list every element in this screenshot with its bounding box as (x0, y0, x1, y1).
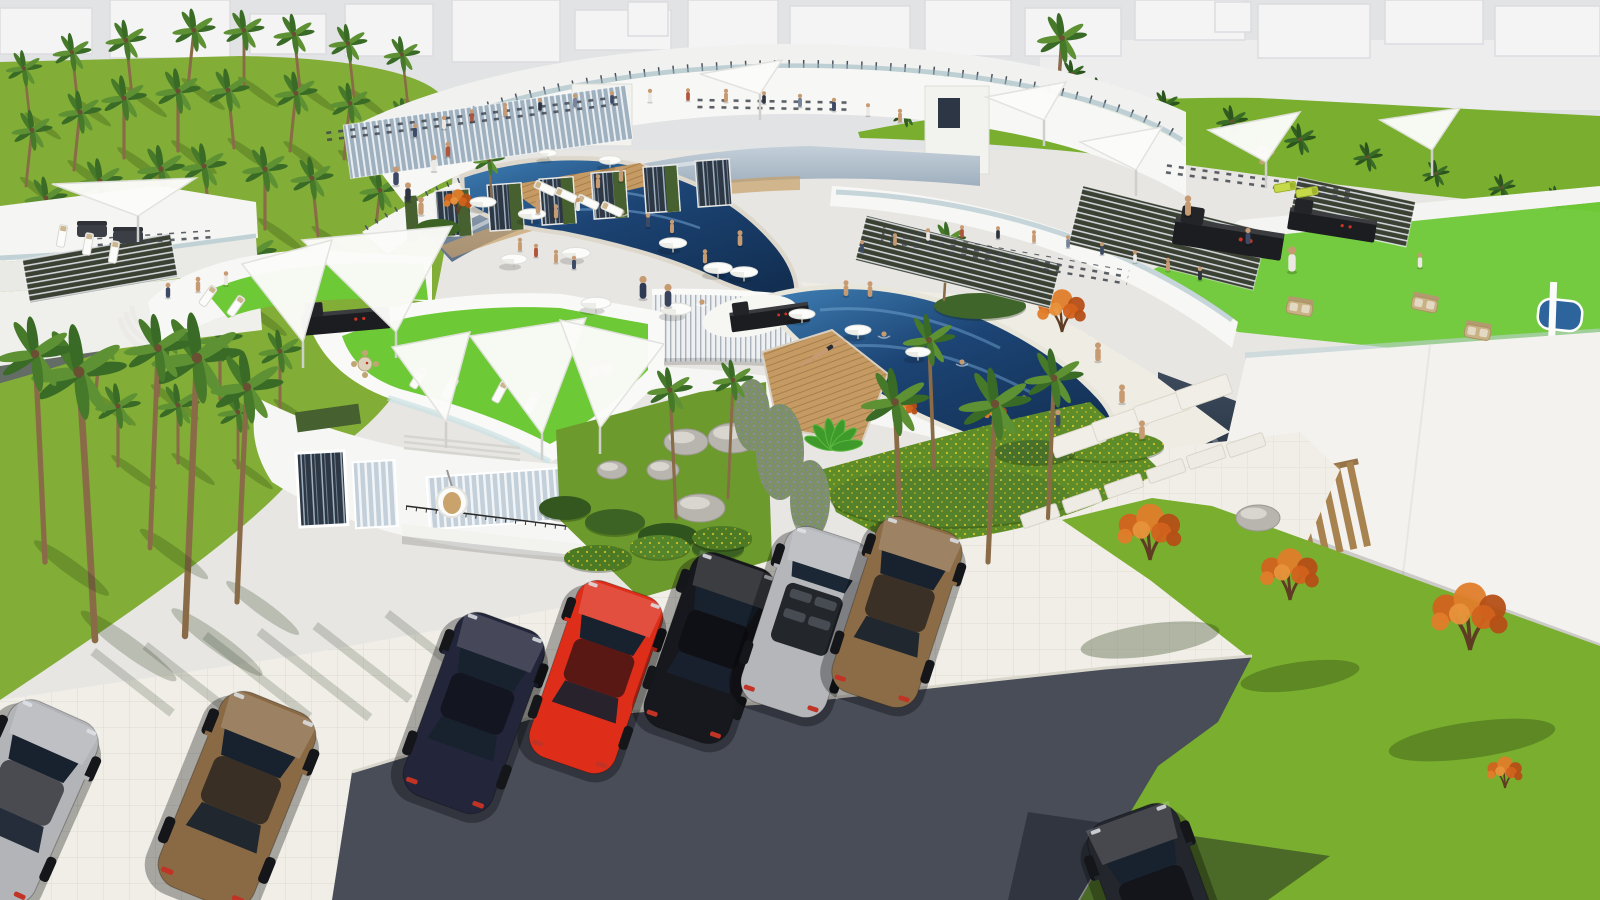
person-head (868, 281, 873, 286)
palm-crown-center (1051, 375, 1058, 382)
palm-crown-center (44, 196, 49, 201)
person-body (703, 254, 707, 264)
person-head (538, 98, 542, 102)
palm-crown-center (78, 110, 83, 115)
person-body (686, 92, 690, 101)
autumn-foliage (1305, 574, 1319, 588)
person-body (554, 209, 558, 219)
palm-crown-center (278, 349, 283, 354)
person-body (518, 242, 522, 251)
person-body (1095, 348, 1101, 361)
person-head (1166, 258, 1170, 262)
dining-chair (351, 361, 357, 367)
person-head (844, 280, 849, 285)
rock (675, 494, 725, 522)
palm-crown-center (262, 166, 267, 171)
person-head (1100, 242, 1104, 246)
palm-crown-center (667, 387, 672, 392)
person-body (1066, 239, 1070, 248)
person-body (893, 237, 897, 246)
person-body (610, 95, 614, 104)
person-body (1133, 254, 1137, 263)
person-head (703, 249, 708, 254)
bush (692, 526, 752, 552)
person-head (1139, 420, 1145, 426)
palm-crown-center (400, 52, 404, 56)
person-body (224, 276, 228, 286)
umbrella-shadow (499, 264, 521, 271)
person-body (596, 179, 600, 189)
dining-chair (362, 372, 368, 378)
palm-crown-center (70, 50, 74, 54)
autumn-foliage (1037, 308, 1048, 319)
person-body (1056, 415, 1061, 427)
autumn-foliage (1487, 771, 1495, 779)
palm-crown-center (346, 41, 350, 45)
person-head (1245, 228, 1250, 233)
umbrella-shadow (468, 207, 490, 214)
palm-crown-center (378, 188, 383, 193)
palm-crown-center (22, 66, 26, 70)
person-head (470, 109, 474, 113)
person-head (518, 238, 522, 242)
palm-crown-center (31, 350, 40, 359)
person-head (664, 284, 671, 291)
person-head (1185, 195, 1192, 202)
person-head (1119, 384, 1125, 390)
person-body (1032, 234, 1036, 243)
person-head (619, 167, 624, 172)
person-body (1418, 257, 1422, 267)
city-block (1495, 6, 1600, 56)
person-body (405, 188, 411, 201)
person-head (610, 91, 614, 95)
person-body (1288, 254, 1295, 272)
bush (564, 545, 632, 573)
palm-crown-center (192, 353, 202, 363)
person-head (639, 276, 646, 283)
palm-crown-center (731, 378, 736, 383)
person-body (572, 260, 576, 269)
person-head (405, 182, 411, 188)
person-head (1418, 253, 1423, 258)
person-head (576, 198, 580, 202)
autumn-foliage (1495, 766, 1505, 776)
person-body (646, 218, 650, 228)
city-block (688, 0, 778, 50)
person-body (866, 107, 870, 116)
person-body (898, 113, 902, 122)
person-head (686, 88, 690, 92)
autumn-foliage (1274, 564, 1290, 580)
person-body (534, 248, 538, 257)
autumn-foliage (1074, 310, 1085, 321)
person-body (762, 95, 766, 104)
palm-crown-center (124, 38, 129, 43)
person-head (860, 240, 864, 244)
person-head (431, 155, 436, 160)
palm-crown-center (236, 410, 241, 415)
palm-crown-center (926, 337, 932, 343)
grill-hood (1294, 198, 1314, 215)
autumn-foliage (1431, 613, 1449, 631)
person-head (832, 98, 836, 102)
palm-crown-center (891, 398, 899, 406)
umbrella-shadow (904, 357, 925, 364)
person-body (442, 120, 446, 129)
person-head (1032, 230, 1036, 234)
person-body (554, 254, 558, 263)
autumn-foliage (1166, 531, 1181, 546)
person-head (648, 89, 652, 93)
person-body (576, 202, 580, 211)
person-body (536, 203, 540, 213)
palm-crown-center (991, 400, 999, 408)
palm-crown-center (154, 344, 162, 352)
person-body (1100, 246, 1104, 255)
person-body (538, 102, 542, 111)
autumn-foliage (1133, 521, 1151, 539)
tower-window (938, 98, 960, 128)
palm-crown-center (176, 403, 181, 408)
palm-crown-center (294, 91, 299, 96)
person-head (554, 250, 558, 254)
autumn-foliage (1118, 529, 1133, 544)
person-body (926, 232, 930, 241)
person-head (1055, 410, 1060, 415)
palm-crown-center (74, 367, 85, 378)
palm-crown-center (115, 403, 120, 408)
city-block (1385, 0, 1483, 44)
person-body (619, 171, 623, 181)
person-body (503, 107, 507, 116)
person-head (413, 124, 417, 128)
city-block (628, 2, 668, 36)
egg-chair-cushion (443, 492, 461, 514)
palm-crown-center (201, 163, 206, 168)
person-body (960, 229, 964, 238)
person-body (573, 98, 577, 107)
dining-chair (362, 350, 368, 356)
person-body (196, 281, 200, 291)
person-head (893, 233, 897, 237)
dining-chair (373, 361, 379, 367)
autumn-foliage (444, 200, 451, 207)
person-head (596, 174, 601, 179)
person-body (1119, 390, 1125, 403)
palm-crown-center (192, 28, 197, 33)
person-head (996, 226, 1000, 230)
umbrella-shadow (597, 165, 616, 171)
palm-crown-center (1434, 172, 1437, 175)
umbrella-shadow (843, 335, 865, 342)
palm-crown-center (30, 128, 35, 133)
person-head (1133, 250, 1137, 254)
person-body (648, 93, 652, 102)
person-head (572, 256, 576, 260)
umbrella-shadow (536, 159, 551, 164)
person-body (868, 286, 873, 297)
rooftop-plunge-pool (1537, 298, 1584, 332)
person-head (446, 142, 451, 147)
person-head (646, 213, 651, 218)
person-head (898, 109, 902, 113)
autumn-foliage (1260, 571, 1274, 585)
person-head (418, 197, 424, 203)
palm-crown-center (292, 32, 297, 37)
city-block (452, 0, 560, 62)
person-head (960, 225, 964, 229)
render-canvas (0, 0, 1600, 900)
palm-crown-center (1298, 137, 1302, 141)
person-head (166, 283, 171, 288)
palm-crown-center (121, 95, 126, 100)
person-body (640, 283, 647, 299)
palm-crown-center (310, 176, 315, 181)
person-body (1198, 271, 1202, 280)
person-head (554, 204, 559, 209)
flowering-bush (564, 545, 632, 571)
palm-crown-center (1366, 155, 1369, 158)
palm-crown-center (242, 28, 247, 33)
palm-crown-center (243, 383, 251, 391)
person-body (798, 98, 802, 107)
person-body (724, 93, 728, 102)
autumn-foliage (450, 197, 458, 205)
flowering-bush (692, 526, 752, 550)
autumn-foliage (1449, 604, 1470, 625)
person-head (1198, 267, 1202, 271)
palm-crown-center (1500, 186, 1503, 189)
person-body (1185, 202, 1191, 216)
umbrella-shadow (787, 319, 809, 326)
person-body (1139, 426, 1145, 439)
bush (539, 496, 591, 522)
bush (585, 509, 645, 537)
guest-room (664, 159, 732, 212)
person-head (762, 91, 766, 95)
palm-crown-center (158, 166, 163, 171)
person-body (832, 102, 836, 111)
palm-crown-center (175, 88, 180, 93)
person-head (798, 94, 802, 98)
person-head (926, 228, 930, 232)
city-block (1258, 4, 1370, 58)
person-body (860, 244, 864, 253)
bush (630, 535, 690, 561)
palm-crown-center (1059, 35, 1065, 41)
person-head (738, 230, 743, 235)
person-head (573, 94, 577, 98)
autumn-foliage (1490, 616, 1508, 634)
person-head (393, 166, 399, 172)
person-head (1288, 246, 1296, 254)
rock (1236, 505, 1280, 531)
palm-crown-center (348, 101, 353, 106)
resort-render (0, 0, 1600, 900)
person-head (1095, 342, 1101, 348)
person-body (166, 287, 170, 297)
autumn-foliage (1514, 772, 1522, 780)
person-head (1066, 235, 1070, 239)
person-body (418, 202, 423, 215)
city-block (345, 4, 433, 56)
person-head (670, 220, 674, 224)
person-body (413, 128, 417, 137)
person-body (738, 235, 743, 246)
person-body (1246, 233, 1251, 245)
person-head (536, 199, 541, 204)
person-head (224, 271, 229, 276)
person-body (670, 224, 674, 233)
person-head (196, 277, 201, 282)
city-block (790, 6, 910, 50)
person-body (446, 146, 450, 156)
person-head (724, 89, 728, 93)
palm-crown-center (1230, 119, 1234, 123)
person-head (534, 244, 538, 248)
flowering-bush (630, 535, 690, 559)
grill-hood (1180, 205, 1205, 226)
person-body (996, 230, 1000, 239)
glass-door (695, 159, 732, 207)
grill-hood (732, 301, 750, 316)
person-body (844, 285, 849, 296)
rock (597, 461, 627, 479)
palm-crown-center (226, 88, 231, 93)
person-head (866, 103, 870, 107)
person-body (393, 172, 399, 185)
person-body (432, 160, 437, 172)
autumn-foliage (912, 409, 918, 415)
person-body (470, 113, 474, 122)
city-block (1215, 2, 1251, 32)
person-head (503, 103, 507, 107)
person-body (1166, 262, 1170, 271)
dining-table (358, 357, 372, 371)
person-body (665, 291, 672, 307)
city-block (925, 0, 1011, 56)
person-head (442, 116, 446, 120)
